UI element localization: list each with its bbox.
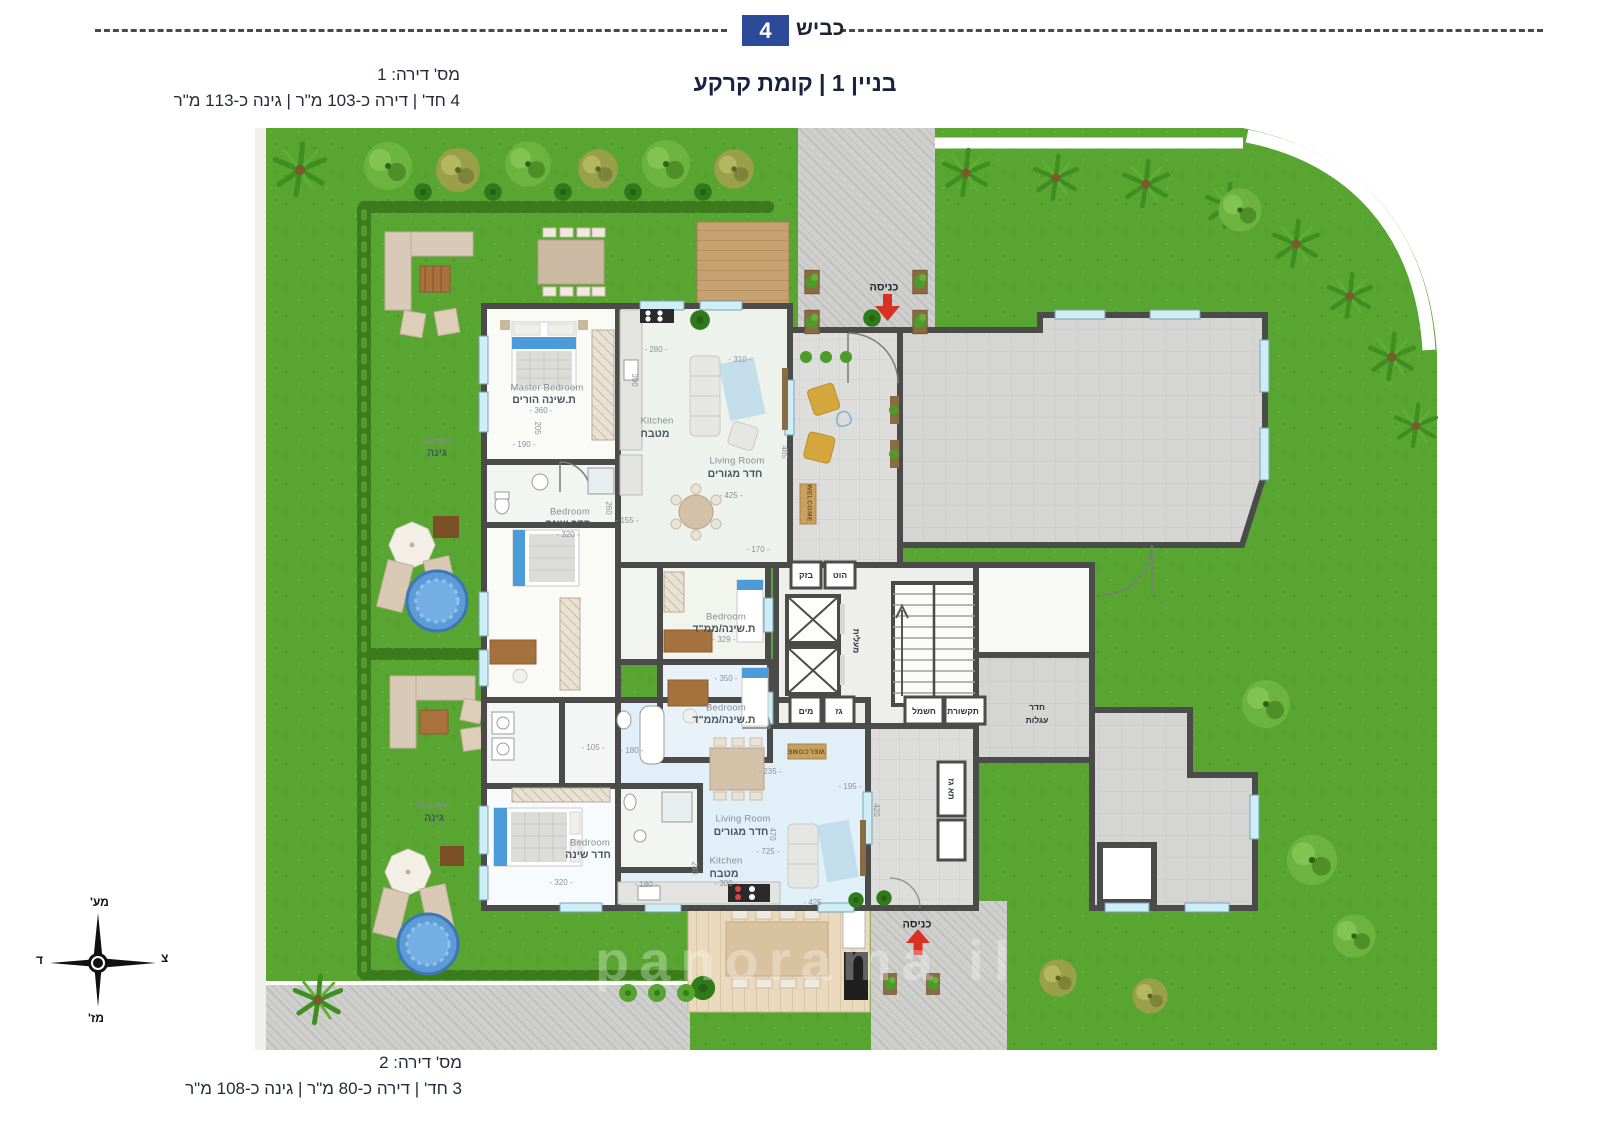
dimension-label: - 195 - xyxy=(838,783,861,791)
room-label: חדר מגורים xyxy=(708,469,763,480)
dimension-label: - 360 - xyxy=(529,407,552,415)
room-label: מים xyxy=(799,707,814,716)
room-label: Living Room xyxy=(709,456,764,466)
room-label: חשמל xyxy=(912,707,936,716)
floorplan-page: 4 כביש בניין 1 | קומת קרקע מס' דירה: 1 4… xyxy=(0,0,1600,1132)
dimension-label: - 425 - xyxy=(803,899,826,907)
dimension-label: 205 xyxy=(533,421,541,434)
compass-north: צ xyxy=(161,951,168,965)
compass-west: מע' xyxy=(90,895,109,909)
room-label: ת.שינה הורים xyxy=(512,395,575,406)
compass-south: ד xyxy=(36,953,43,967)
room-label: מעלית xyxy=(852,629,861,654)
entrance-label: כניסה xyxy=(903,920,932,931)
dimension-label: - 155 - xyxy=(615,517,638,525)
room-label: ת.שינה/ממ"ד xyxy=(693,624,756,635)
dimension-label: - 350 - xyxy=(714,675,737,683)
dimension-label: - 320 - xyxy=(556,531,579,539)
room-label: Garden xyxy=(418,801,451,811)
dimension-label: - 180 - xyxy=(634,881,657,889)
dimension-label: 260 xyxy=(604,501,612,514)
room-label: חדר שינה xyxy=(545,519,591,530)
dimension-label: - 170 - xyxy=(746,546,769,554)
dimension-label: 390 xyxy=(630,373,638,386)
room-label: הוט xyxy=(833,571,847,580)
room-label: Bedroom xyxy=(706,703,746,713)
dimension-label: - 320 - xyxy=(549,879,572,887)
room-label: WELCOME xyxy=(787,747,824,754)
compass-east: מז' xyxy=(88,1011,104,1025)
dimension-label: 470 xyxy=(768,827,776,840)
dimension-label: - 235 - xyxy=(758,768,781,776)
room-label: בזק xyxy=(799,571,813,580)
room-label: Garden xyxy=(421,436,454,446)
room-label: גינה xyxy=(424,813,444,824)
room-label: Master Bedroom xyxy=(510,383,583,393)
dimension-label: - 280 - xyxy=(644,346,667,354)
dimension-label: 240 xyxy=(690,861,698,874)
plan-labels-layer: Master Bedroomת.שינה הורים- 360 -Kitchen… xyxy=(0,0,1600,1132)
dimension-label: 420 xyxy=(872,803,880,816)
entrance-label: כניסה xyxy=(870,283,899,294)
room-label: Kitchen xyxy=(640,416,673,426)
dimension-label: - 310 - xyxy=(728,356,751,364)
compass: מע' צ ד מז' xyxy=(28,895,178,1035)
dimension-label: - 425 - xyxy=(719,492,742,500)
room-label: Living Room xyxy=(715,814,770,824)
dimension-label: - 329 - xyxy=(712,636,735,644)
dimension-label: - 190 - xyxy=(512,441,535,449)
room-label: גינה xyxy=(427,448,447,459)
room-label: חדר מגורים xyxy=(714,827,769,838)
room-label: חדר xyxy=(1029,703,1045,712)
room-label: תא גז xyxy=(947,778,956,799)
dimension-label: - 105 - xyxy=(581,744,604,752)
room-label: Bedroom xyxy=(570,838,610,848)
room-label: תקשורת xyxy=(947,707,979,716)
dimension-label: - 300 - xyxy=(714,880,737,888)
dimension-label: 485 xyxy=(780,445,788,458)
room-label: Bedroom xyxy=(550,507,590,517)
room-label: Kitchen xyxy=(709,856,742,866)
room-label: WELCOME xyxy=(805,484,812,521)
room-label: מטבח xyxy=(641,429,670,440)
room-label: Bedroom xyxy=(706,612,746,622)
room-label: חדר שינה xyxy=(565,850,611,861)
room-label: ת.שינה/ממ"ד xyxy=(693,715,756,726)
dimension-label: - 180 - xyxy=(620,747,643,755)
room-label: עגלות xyxy=(1026,716,1049,725)
room-label: גז xyxy=(835,707,842,716)
room-label: מטבח xyxy=(710,869,739,880)
dimension-label: - 725 - xyxy=(756,848,779,856)
